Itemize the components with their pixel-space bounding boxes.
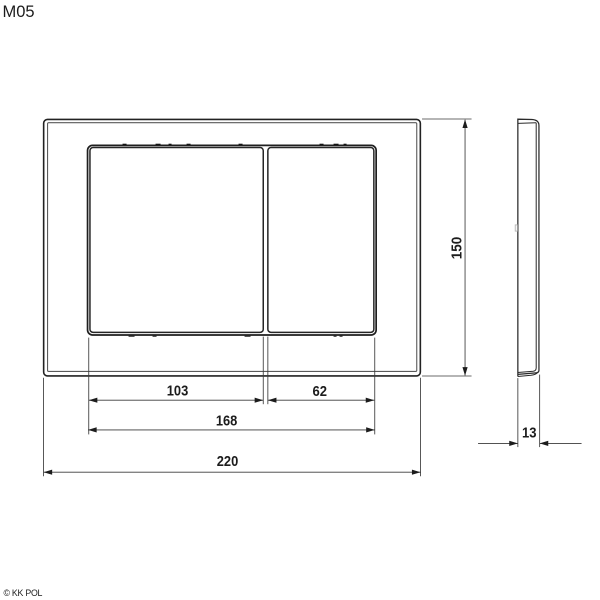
svg-text:62: 62: [313, 384, 328, 400]
svg-text:103: 103: [167, 384, 189, 400]
svg-text:M05: M05: [3, 3, 35, 21]
svg-text:220: 220: [217, 454, 239, 470]
svg-text:© KK POL: © KK POL: [4, 588, 43, 598]
svg-text:168: 168: [216, 413, 238, 429]
svg-text:13: 13: [522, 426, 537, 442]
svg-text:150: 150: [449, 237, 465, 260]
